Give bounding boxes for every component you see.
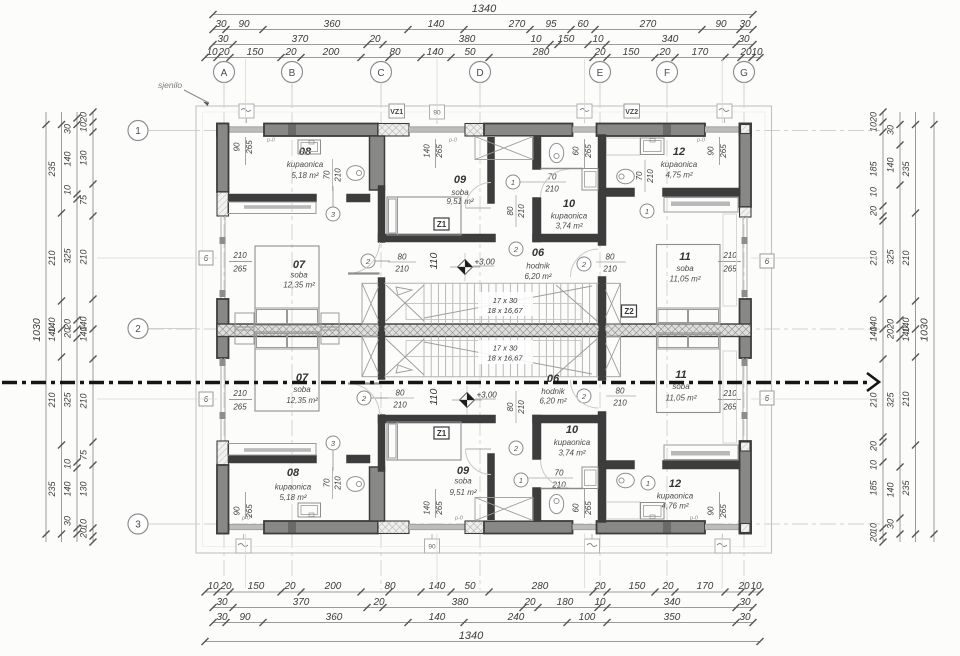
svg-text:1: 1 (645, 207, 649, 216)
svg-text:C: C (377, 68, 384, 79)
svg-text:E: E (597, 68, 604, 79)
svg-text:380: 380 (452, 597, 469, 608)
svg-text:2: 2 (513, 444, 519, 453)
svg-text:265: 265 (719, 144, 728, 159)
svg-text:F: F (664, 68, 670, 79)
svg-text:11: 11 (675, 369, 686, 381)
svg-text:30: 30 (217, 34, 229, 45)
svg-text:265: 265 (722, 403, 737, 412)
svg-text:6: 6 (204, 395, 209, 404)
svg-text:20: 20 (869, 112, 879, 123)
svg-text:210: 210 (232, 251, 247, 260)
svg-text:30: 30 (739, 597, 751, 608)
svg-text:10: 10 (79, 519, 89, 529)
svg-text:9,51 m²: 9,51 m² (449, 488, 476, 497)
svg-text:210: 210 (392, 401, 407, 410)
svg-text:10: 10 (869, 122, 879, 132)
svg-text:265: 265 (232, 403, 247, 412)
svg-text:1: 1 (511, 178, 515, 187)
svg-text:50: 50 (464, 581, 476, 592)
svg-text:10: 10 (594, 597, 606, 608)
svg-text:280: 280 (531, 581, 549, 592)
svg-text:20: 20 (869, 441, 879, 452)
svg-text:210: 210 (544, 185, 559, 194)
svg-text:80: 80 (506, 402, 515, 411)
svg-text:hodnik: hodnik (541, 387, 566, 396)
svg-text:30: 30 (63, 124, 73, 134)
svg-text:10: 10 (63, 185, 73, 195)
svg-text:kupaonica: kupaonica (275, 483, 312, 492)
svg-text:1: 1 (646, 479, 650, 488)
svg-text:140: 140 (63, 151, 73, 166)
svg-text:5,18 m²: 5,18 m² (279, 493, 306, 502)
svg-text:kupaonica: kupaonica (661, 160, 698, 169)
svg-text:265: 265 (245, 140, 254, 155)
svg-text:200: 200 (324, 581, 342, 592)
svg-text:265: 265 (584, 144, 593, 159)
svg-text:Z2: Z2 (624, 307, 634, 316)
svg-text:kupaonica: kupaonica (551, 212, 588, 221)
svg-text:p-0: p-0 (689, 516, 699, 522)
svg-text:4,76 m²: 4,76 m² (661, 502, 688, 511)
svg-text:06: 06 (532, 247, 545, 259)
svg-text:265: 265 (435, 144, 444, 159)
svg-text:60: 60 (572, 146, 581, 155)
svg-text:20: 20 (217, 47, 230, 58)
svg-text:140: 140 (427, 47, 444, 58)
svg-text:30: 30 (886, 519, 896, 529)
svg-text:20: 20 (737, 581, 750, 592)
svg-text:90: 90 (233, 142, 242, 151)
svg-text:9,51 m²: 9,51 m² (446, 197, 473, 206)
svg-text:6: 6 (765, 394, 770, 403)
svg-text:10: 10 (592, 34, 604, 45)
svg-text:2: 2 (361, 394, 367, 403)
svg-text:100: 100 (579, 612, 596, 623)
svg-text:150: 150 (623, 47, 640, 58)
svg-text:140: 140 (886, 482, 896, 497)
svg-text:210: 210 (612, 399, 627, 408)
svg-text:20: 20 (523, 597, 536, 608)
svg-text:2: 2 (581, 260, 587, 269)
svg-text:235: 235 (901, 480, 911, 497)
svg-text:140: 140 (423, 501, 432, 515)
svg-text:90: 90 (428, 544, 436, 551)
svg-text:110: 110 (428, 252, 440, 269)
svg-text:18 x 16,67: 18 x 16,67 (487, 354, 523, 363)
svg-text:80: 80 (606, 253, 615, 262)
svg-text:210: 210 (394, 265, 409, 274)
svg-text:75: 75 (79, 449, 89, 460)
svg-text:210: 210 (232, 389, 247, 398)
svg-text:265: 265 (719, 504, 728, 519)
svg-text:210: 210 (334, 168, 343, 183)
svg-text:10: 10 (869, 460, 879, 470)
svg-text:17 x 30: 17 x 30 (493, 296, 518, 305)
svg-text:210: 210 (722, 251, 737, 260)
svg-text:150: 150 (248, 581, 265, 592)
svg-text:3,74 m²: 3,74 m² (555, 222, 582, 231)
svg-text:340: 340 (662, 34, 679, 45)
svg-text:30: 30 (215, 19, 227, 30)
svg-text:10: 10 (207, 581, 219, 592)
svg-text:11: 11 (679, 251, 690, 263)
svg-text:70: 70 (323, 478, 332, 487)
svg-text:110: 110 (428, 388, 440, 405)
svg-text:210: 210 (551, 481, 566, 490)
svg-text:VZ2: VZ2 (625, 109, 638, 116)
svg-text:210: 210 (901, 250, 911, 266)
svg-text:soba: soba (676, 264, 694, 273)
svg-text:90: 90 (239, 612, 251, 623)
svg-text:4,75 m²: 4,75 m² (665, 171, 692, 180)
svg-text:80: 80 (398, 253, 407, 262)
svg-text:20: 20 (869, 532, 879, 543)
svg-text:20: 20 (593, 47, 606, 58)
svg-text:140: 140 (428, 19, 445, 30)
svg-text:20: 20 (63, 328, 73, 339)
svg-text:210: 210 (869, 250, 879, 266)
svg-text:soba: soba (290, 271, 308, 280)
svg-text:07: 07 (293, 259, 306, 271)
svg-text:150: 150 (558, 34, 575, 45)
svg-text:210: 210 (646, 169, 655, 184)
svg-text:140: 140 (423, 144, 432, 158)
svg-text:12: 12 (669, 478, 681, 490)
svg-text:350: 350 (664, 612, 681, 623)
svg-text:270: 270 (508, 19, 526, 30)
svg-text:140: 140 (47, 326, 57, 341)
svg-text:D: D (476, 68, 483, 79)
svg-text:75: 75 (79, 194, 89, 205)
svg-text:325: 325 (886, 392, 896, 408)
svg-text:p-0: p-0 (241, 516, 251, 522)
svg-text:265: 265 (232, 265, 247, 274)
svg-text:80: 80 (396, 389, 405, 398)
svg-text:09: 09 (454, 174, 467, 186)
svg-text:sjenilo: sjenilo (158, 80, 182, 90)
svg-text:210: 210 (602, 265, 617, 274)
svg-text:140: 140 (901, 326, 911, 341)
svg-text:B: B (289, 68, 296, 79)
svg-text:210: 210 (722, 389, 737, 398)
svg-text:p-0: p-0 (696, 138, 706, 144)
svg-text:80: 80 (506, 206, 515, 215)
svg-text:soba: soba (454, 477, 472, 486)
svg-text:140: 140 (886, 157, 896, 172)
svg-text:20: 20 (368, 34, 381, 45)
svg-text:soba: soba (293, 385, 311, 394)
svg-text:6: 6 (204, 254, 209, 263)
svg-text:10: 10 (566, 424, 579, 436)
svg-text:p-0: p-0 (266, 138, 276, 144)
svg-text:210: 210 (869, 392, 879, 408)
svg-text:140: 140 (429, 612, 446, 623)
svg-text:2: 2 (135, 324, 141, 335)
svg-text:1030: 1030 (919, 318, 931, 342)
svg-text:6,20 m²: 6,20 m² (539, 397, 566, 406)
svg-text:11,05 m²: 11,05 m² (670, 275, 701, 284)
svg-text:kupaonica: kupaonica (554, 438, 591, 447)
svg-text:20: 20 (219, 581, 232, 592)
svg-text:70: 70 (323, 170, 332, 179)
svg-text:170: 170 (697, 581, 714, 592)
svg-text:VZ1: VZ1 (390, 109, 403, 116)
svg-text:185: 185 (869, 161, 879, 177)
svg-text:170: 170 (692, 47, 709, 58)
svg-text:140: 140 (63, 481, 73, 496)
svg-text:1: 1 (135, 126, 141, 137)
svg-text:60: 60 (577, 19, 589, 30)
svg-text:A: A (221, 68, 228, 79)
svg-text:30: 30 (63, 516, 73, 526)
svg-text:30: 30 (738, 34, 750, 45)
svg-text:kupaonica: kupaonica (657, 492, 694, 501)
svg-text:11,05 m²: 11,05 m² (666, 394, 697, 403)
svg-text:3: 3 (135, 520, 141, 531)
svg-text:20: 20 (79, 528, 89, 539)
svg-text:325: 325 (63, 248, 73, 264)
svg-text:+3,00: +3,00 (475, 258, 496, 267)
svg-text:235: 235 (901, 161, 911, 178)
svg-text:210: 210 (517, 400, 526, 415)
svg-text:360: 360 (326, 612, 343, 623)
svg-text:70: 70 (555, 469, 564, 478)
svg-text:210: 210 (517, 204, 526, 219)
svg-text:80: 80 (389, 47, 401, 58)
svg-text:20: 20 (79, 112, 89, 123)
svg-text:50: 50 (464, 47, 476, 58)
svg-text:90: 90 (707, 506, 716, 515)
svg-text:210: 210 (79, 393, 89, 409)
svg-text:1: 1 (519, 476, 523, 485)
svg-text:90: 90 (233, 506, 242, 515)
svg-text:17 x 30: 17 x 30 (493, 344, 518, 353)
svg-text:360: 360 (324, 19, 341, 30)
svg-text:180: 180 (557, 597, 574, 608)
svg-text:20: 20 (283, 581, 296, 592)
svg-text:20: 20 (886, 329, 896, 340)
svg-text:140: 140 (79, 326, 89, 341)
svg-text:140: 140 (869, 326, 879, 341)
svg-text:325: 325 (63, 392, 73, 408)
svg-text:380: 380 (459, 34, 476, 45)
svg-text:Z1: Z1 (437, 220, 447, 229)
svg-text:200: 200 (322, 47, 340, 58)
svg-text:30: 30 (216, 597, 228, 608)
svg-text:Z1: Z1 (437, 429, 447, 438)
svg-text:12,35 m²: 12,35 m² (283, 281, 315, 290)
svg-text:210: 210 (47, 392, 57, 408)
svg-text:235: 235 (47, 161, 57, 178)
svg-text:08: 08 (287, 467, 300, 479)
svg-text:10: 10 (79, 122, 89, 132)
svg-text:10: 10 (869, 523, 879, 533)
svg-text:130: 130 (79, 481, 89, 496)
svg-text:10: 10 (63, 459, 73, 469)
svg-text:210: 210 (79, 249, 89, 265)
svg-text:G: G (740, 68, 748, 79)
svg-text:90: 90 (715, 19, 727, 30)
svg-text:265: 265 (722, 265, 737, 274)
svg-text:270: 270 (639, 19, 657, 30)
svg-text:20: 20 (661, 581, 674, 592)
svg-text:kupaonica: kupaonica (287, 160, 324, 169)
svg-text:18 x 16,67: 18 x 16,67 (487, 306, 523, 315)
svg-text:30: 30 (739, 612, 751, 623)
svg-text:185: 185 (869, 480, 879, 496)
svg-text:20: 20 (886, 319, 896, 330)
svg-text:1340: 1340 (459, 630, 484, 642)
svg-text:150: 150 (629, 581, 646, 592)
svg-text:60: 60 (572, 503, 581, 512)
svg-text:210: 210 (334, 476, 343, 491)
svg-text:70: 70 (635, 171, 644, 180)
svg-text:2: 2 (513, 245, 519, 254)
svg-text:95: 95 (545, 19, 557, 30)
svg-text:10: 10 (530, 34, 542, 45)
svg-text:10: 10 (563, 198, 576, 210)
svg-text:340: 340 (664, 597, 681, 608)
svg-text:20: 20 (869, 206, 879, 217)
svg-text:2: 2 (581, 392, 587, 401)
svg-text:370: 370 (293, 597, 310, 608)
svg-text:12: 12 (673, 146, 685, 158)
svg-text:p-0: p-0 (448, 138, 458, 144)
svg-text:20: 20 (658, 47, 671, 58)
svg-text:90: 90 (707, 146, 716, 155)
svg-text:130: 130 (79, 150, 89, 165)
svg-text:30: 30 (886, 125, 896, 135)
svg-text:235: 235 (47, 481, 57, 498)
svg-text:soba: soba (451, 188, 469, 197)
svg-text:10: 10 (869, 187, 879, 197)
svg-text:09: 09 (457, 465, 470, 477)
svg-text:+3,00: +3,00 (477, 391, 498, 400)
svg-text:20: 20 (284, 47, 297, 58)
svg-text:1340: 1340 (472, 3, 497, 15)
svg-text:370: 370 (292, 34, 309, 45)
svg-text:hodnik: hodnik (526, 262, 551, 271)
svg-text:5,18 m²: 5,18 m² (291, 171, 318, 180)
svg-text:240: 240 (507, 612, 525, 623)
svg-text:12,35 m²: 12,35 m² (286, 396, 318, 405)
svg-text:80: 80 (616, 387, 625, 396)
svg-text:90: 90 (238, 19, 250, 30)
svg-text:6,20 m²: 6,20 m² (524, 272, 551, 281)
svg-text:20: 20 (372, 597, 385, 608)
svg-text:210: 210 (47, 250, 57, 266)
svg-text:10: 10 (206, 47, 218, 58)
svg-text:265: 265 (584, 501, 593, 516)
svg-text:325: 325 (886, 249, 896, 265)
svg-text:1030: 1030 (31, 318, 43, 342)
svg-text:150: 150 (247, 47, 264, 58)
svg-text:265: 265 (435, 501, 444, 516)
svg-text:p-0: p-0 (454, 516, 464, 522)
svg-text:3,74 m²: 3,74 m² (558, 449, 585, 458)
svg-text:210: 210 (901, 391, 911, 407)
svg-text:280: 280 (532, 47, 550, 58)
svg-text:10: 10 (750, 581, 762, 592)
